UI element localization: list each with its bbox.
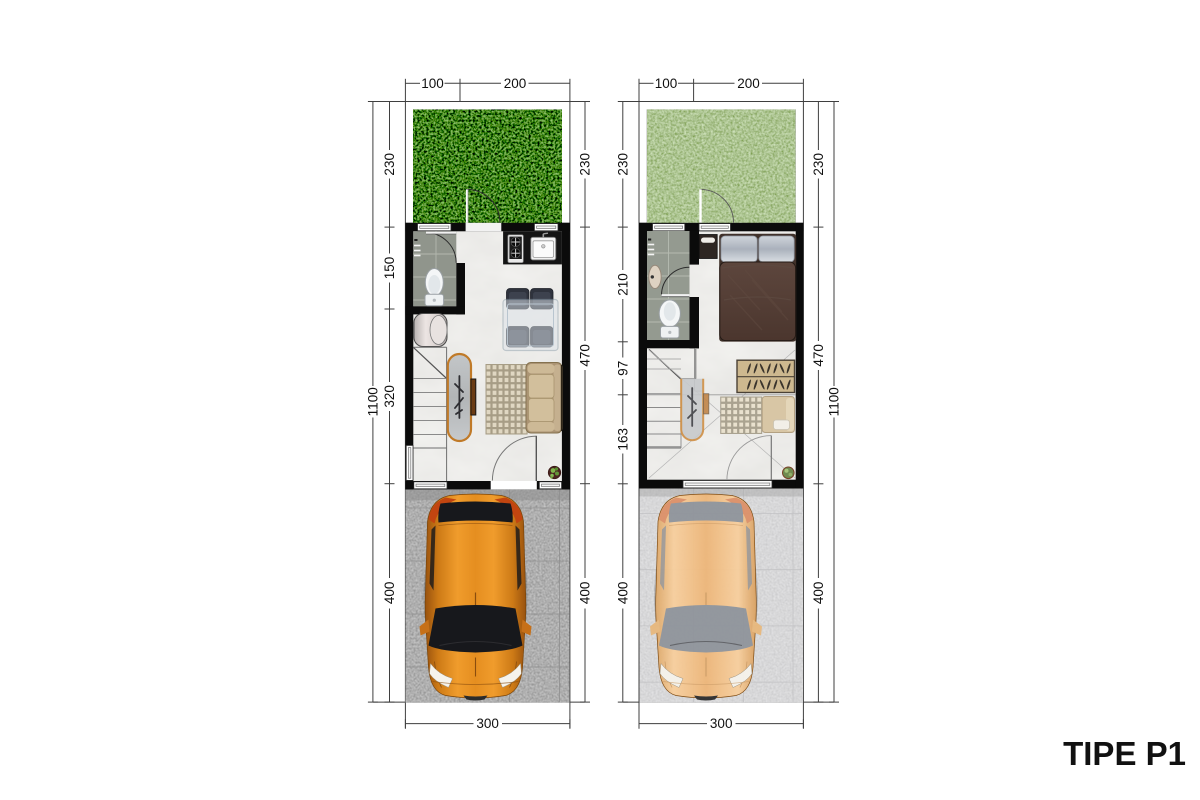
svg-text:100: 100 [421,76,444,91]
svg-text:300: 300 [476,716,499,731]
svg-text:100: 100 [655,76,678,91]
svg-text:TIPE P1: TIPE P1 [1063,735,1186,772]
svg-text:400: 400 [811,582,826,605]
svg-text:150: 150 [382,257,397,280]
svg-text:320: 320 [382,385,397,408]
svg-text:400: 400 [615,582,630,605]
svg-text:163: 163 [615,428,630,451]
svg-text:200: 200 [737,76,760,91]
svg-text:470: 470 [578,344,593,367]
svg-text:230: 230 [578,153,593,176]
svg-text:230: 230 [615,153,630,176]
svg-text:1100: 1100 [365,387,380,416]
svg-text:200: 200 [504,76,527,91]
svg-text:300: 300 [710,716,733,731]
svg-text:230: 230 [811,153,826,176]
svg-text:400: 400 [578,582,593,605]
svg-text:97: 97 [615,361,630,376]
svg-text:230: 230 [382,153,397,176]
svg-text:1100: 1100 [827,387,842,416]
svg-text:400: 400 [382,582,397,605]
svg-text:470: 470 [811,344,826,367]
svg-text:210: 210 [615,273,630,296]
